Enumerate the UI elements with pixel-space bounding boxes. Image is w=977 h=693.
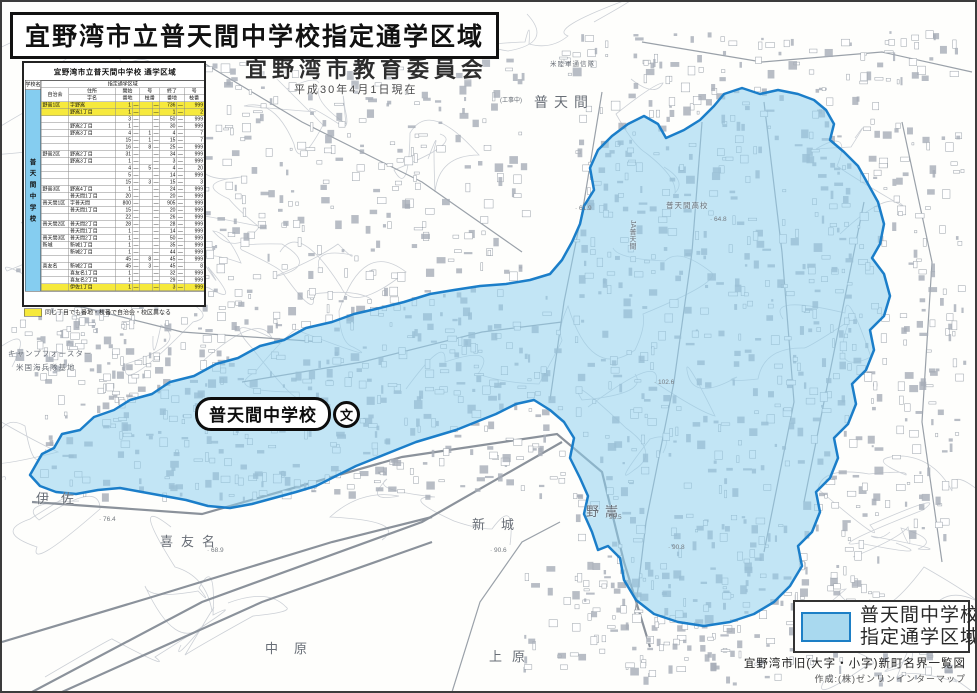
col-header-go2: 号 [184,88,204,95]
district-table: 指定通学区域 自治会 住所 開始 号 終了 号 字名 番地 枝番 [41,81,205,292]
table-row: 普天間1丁目15——20—999 [41,207,204,214]
elevation-label: · 64.8 [710,216,727,223]
table-row: 15—1—15—7 [41,137,204,144]
map-place-label: 新城 [472,514,530,533]
table-note: 同じ丁目でも番地・枝番で自治会・校区異なる [24,308,344,330]
table-row: 16—8—25—999 [41,144,204,151]
school-marker: 普天間中学校 文 [195,397,360,431]
legend-line1: 普天間中学校 [860,605,977,626]
elevation-label: · 68.9 [207,547,224,554]
table-row: 普天間1区字普天間800——905—999 [41,200,204,207]
school-symbol-icon: 文 [333,401,360,428]
map-title: 宜野湾市立普天間中学校指定通学区域 [10,12,499,59]
map-place-label: 上原 [489,646,535,665]
table-row: 野嵩3丁目1——3—999 [41,158,204,165]
col-header-addr: 住所 [69,88,116,95]
table-row: 3——50—999 [41,116,204,123]
table-row: 普天間1丁目20——20—999 [41,193,204,200]
map-sheet: 宜野湾市立普天間中学校指定通学区域 宜野湾市教育委員会 平成30年4月1日現在 … [0,0,977,693]
elevation-label: · 90.8 [668,544,685,551]
map-place-label: キャンプフォースター [8,348,92,359]
table-row: 喜友名2丁目1——29—999 [41,277,204,284]
col-header-edaban2: 枝番 [184,95,204,102]
col-header-assoc: 自治会 [41,88,69,102]
school-name-vertical: 普天間中学校 [26,90,41,291]
district-table-box: 宜野湾市立普天間中学校 通学区域 学校名 普天間中学校 指定通学区域 [22,61,206,307]
footer-map-series: 宜野湾市旧(大字・小字)新町名界一覧図 [744,655,966,671]
col-header-aza: 字名 [69,95,116,102]
table-row: 野嵩3区野嵩4丁目1——24—999 [41,186,204,193]
table-row: 野嵩1丁目1——1—2 [41,109,204,116]
school-name-column: 学校名 普天間中学校 [26,81,42,292]
map-place-label: 普天間 [534,92,594,112]
elevation-label: · 96.5 [605,514,622,521]
map-place-label: 米陸軍通信隊 [550,58,595,68]
table-row: 普天間2区普天間2丁目28——28—999 [41,221,204,228]
table-row: 普天間1丁目1——14—999 [41,228,204,235]
legend-box: 普天間中学校 指定通学区域 [793,600,970,653]
table-row: 喜友名新城2丁目45—3—45—8 [41,263,204,270]
table-row: 5——14—999 [41,172,204,179]
table-row: 普天間3区普天間2丁目1——50—999 [41,235,204,242]
table-row: 15—3—15—3 [41,179,204,186]
footer-credit: 作成:(株)ゼンリンインターマップ [744,672,966,685]
table-row: 野嵩2丁目1——30—999 [41,123,204,130]
table-row: 野嵩3丁目4—1—4—7 [41,130,204,137]
map-subtitle-date: 平成30年4月1日現在 [294,81,417,97]
col-header-banchi1: 番地 [115,95,139,102]
col-header-edaban1: 枝番 [140,95,160,102]
col-header-start: 開始 [115,88,139,95]
elevation-label: · 61.9 [575,205,592,212]
school-marker-label: 普天間中学校 [195,397,331,431]
table-row: 22——26—999 [41,214,204,221]
map-place-label: 中原 [265,638,323,657]
table-row: 新城2丁目1——44—999 [41,249,204,256]
area-header: 指定通学区域 [41,81,204,88]
legend-line2: 指定通学区域 [860,627,977,648]
col-header-go1: 号 [140,88,160,95]
highlight-swatch [24,308,42,316]
table-row: 野嵩2区野嵩2丁目31——34—999 [41,151,204,158]
legend-text: 普天間中学校 指定通学区域 [860,605,977,648]
table-row: 45—8—45—999 [41,256,204,263]
legend-district-swatch [801,612,851,642]
table-row: 野嵩1区字野嵩1——736—999 [41,102,204,109]
elevation-label: · 90.6 [490,547,507,554]
map-place-label: 普天間高校 [666,200,709,211]
table-row: 新城新城1丁目1——35—999 [41,242,204,249]
col-header-end: 終了 [160,88,184,95]
table-note-text: 同じ丁目でも番地・枝番で自治会・校区異なる [45,308,171,317]
footer: 宜野湾市旧(大字・小字)新町名界一覧図 作成:(株)ゼンリンインターマップ [744,655,966,685]
district-table-title: 宜野湾市立普天間中学校 通学区域 [25,65,205,81]
table-row: 伊佐1丁目1——3—999 [41,284,204,291]
map-place-label: 伊佐 [36,488,86,507]
table-row: 4—5—4—20 [41,165,204,172]
school-col-header: 学校名 [26,81,41,90]
map-place-label: JA普天間 [627,220,637,249]
col-header-banchi2: 番地 [160,95,184,102]
elevation-label: · 102.6 [654,379,674,386]
district-table-body: 野嵩1区字野嵩1——736—999野嵩1丁目1——1—23——50—999野嵩2… [41,102,204,291]
map-place-label: 米国海兵隊基地 [16,362,76,373]
map-place-label: (工事中) [500,95,522,104]
table-row: 喜友名1丁目1——32—999 [41,270,204,277]
elevation-label: · 76.4 [99,516,116,523]
